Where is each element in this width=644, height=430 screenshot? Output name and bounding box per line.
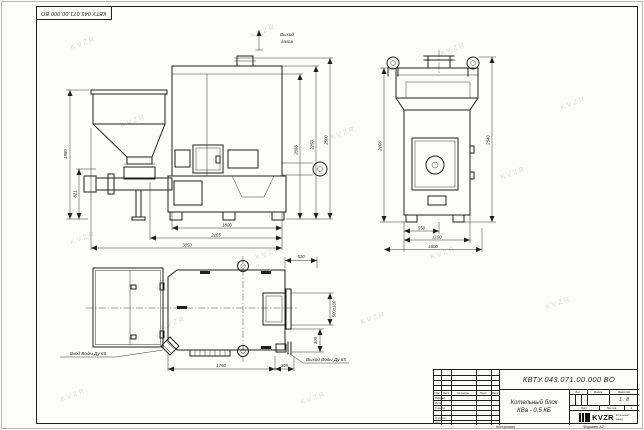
footer-copied-label: Копировал xyxy=(496,425,515,429)
boiler-plan xyxy=(86,256,298,362)
side-door-plan xyxy=(263,293,285,325)
kvzr-logo-sub-line2: завод xyxy=(616,418,629,421)
kvzr-logo-icon xyxy=(579,413,590,422)
outlet-label: Выход Воды Ду 65 xyxy=(306,357,346,362)
tb-product-name-line1: Котельный блок xyxy=(510,399,557,408)
plan-dimensions: 520 500±100 300 1750 305 xyxy=(168,254,337,371)
screw-feeder xyxy=(84,174,172,220)
inlet-label: Вход Воды Ду 65 xyxy=(70,351,107,356)
dim-front-bottom-outer: 3050 xyxy=(182,243,192,248)
boiler-body-front xyxy=(172,56,327,176)
front-view: Выход газов 1980 821 2086 2250 2500 xyxy=(63,30,333,250)
burner-door xyxy=(193,145,223,173)
dim-front-bottom-mid: 2165 xyxy=(210,233,221,238)
dim-plan-top-right: 520 xyxy=(297,254,305,259)
rear-door xyxy=(412,138,458,190)
tb-scale-value: 1 : 8 xyxy=(609,394,639,405)
side-view: 2166 2540 550 1100 1600 xyxy=(378,50,497,252)
tb-header-data: Дата xyxy=(491,390,499,395)
tb-product-name: Котельный блок КВа - 0,5 КБ xyxy=(499,389,569,425)
tb-massa-label: Масса xyxy=(587,389,609,394)
flue-stub-side xyxy=(424,50,454,75)
dim-side-bottom-outer: 1600 xyxy=(428,244,438,249)
drawing-sheet: KVZR KVZR KVZR KVZR KVZR KVZR KVZR KVZR … xyxy=(0,0,644,430)
tb-row-utv: Утв. xyxy=(435,420,451,425)
footer-format-label: Формат А2 xyxy=(583,425,604,429)
fuel-hopper xyxy=(91,90,167,179)
dim-front-right-outer: 2500 xyxy=(324,135,329,146)
ash-door xyxy=(174,181,202,205)
dim-plan-right-lower: 300 xyxy=(313,336,318,344)
dim-plan-right-upper: 500±100 xyxy=(332,300,337,317)
dim-front-right-inner: 2086 xyxy=(294,145,299,156)
dim-side-right: 2540 xyxy=(486,135,491,146)
tb-doc-number: КВТУ.043.071.00.000 ВО xyxy=(499,370,639,389)
hopper-plan xyxy=(93,268,164,347)
front-dimensions: 1980 821 2086 2250 2500 1800 2165 3050 xyxy=(63,58,333,250)
drawing-canvas: Выход газов 1980 821 2086 2250 2500 xyxy=(0,0,644,430)
plan-view: Вход Воды Ду 65 Выход Воды Ду 65 520 500… xyxy=(60,254,349,371)
dim-plan-bottom-right: 305 xyxy=(281,363,289,368)
boiler-body-side xyxy=(396,68,478,222)
water-outlet: Выход Воды Ду 65 xyxy=(276,342,349,363)
dim-front-bottom-inner: 1800 xyxy=(222,223,232,228)
dim-plan-bottom-main: 1750 xyxy=(216,363,226,368)
smoke-exhauster xyxy=(313,162,327,176)
kvzr-logo-subtitle: Котельный завод xyxy=(616,414,629,420)
fan-housing xyxy=(426,156,444,174)
boiler-base-front xyxy=(168,176,286,220)
flue-label-line2: газов xyxy=(281,39,293,44)
dim-front-right-mid: 2250 xyxy=(310,140,315,151)
flue-gas-outlet-callout: Выход газов xyxy=(255,30,294,50)
dim-front-left-inner: 821 xyxy=(73,190,78,198)
dim-side-left: 2166 xyxy=(378,141,383,152)
title-block: Изм. Лист № докум. Подп. Дата Разраб. Пр… xyxy=(433,369,638,424)
tb-lit-label: Лит. xyxy=(569,389,587,394)
dim-side-bottom-mid: 1100 xyxy=(432,235,442,240)
tb-header-ndokum: № докум. xyxy=(451,390,476,395)
dim-front-left-outer: 1980 xyxy=(63,149,68,159)
tb-company-cell: KVZR Котельный завод xyxy=(569,410,639,425)
kvzr-logo-text: KVZR xyxy=(592,413,614,422)
flue-label-line1: Выход xyxy=(280,32,294,37)
tb-header-podp: Подп. xyxy=(476,390,491,395)
tb-product-name-line2: КВа - 0,5 КБ xyxy=(517,407,551,416)
dim-side-bottom-inner: 550 xyxy=(418,226,426,231)
